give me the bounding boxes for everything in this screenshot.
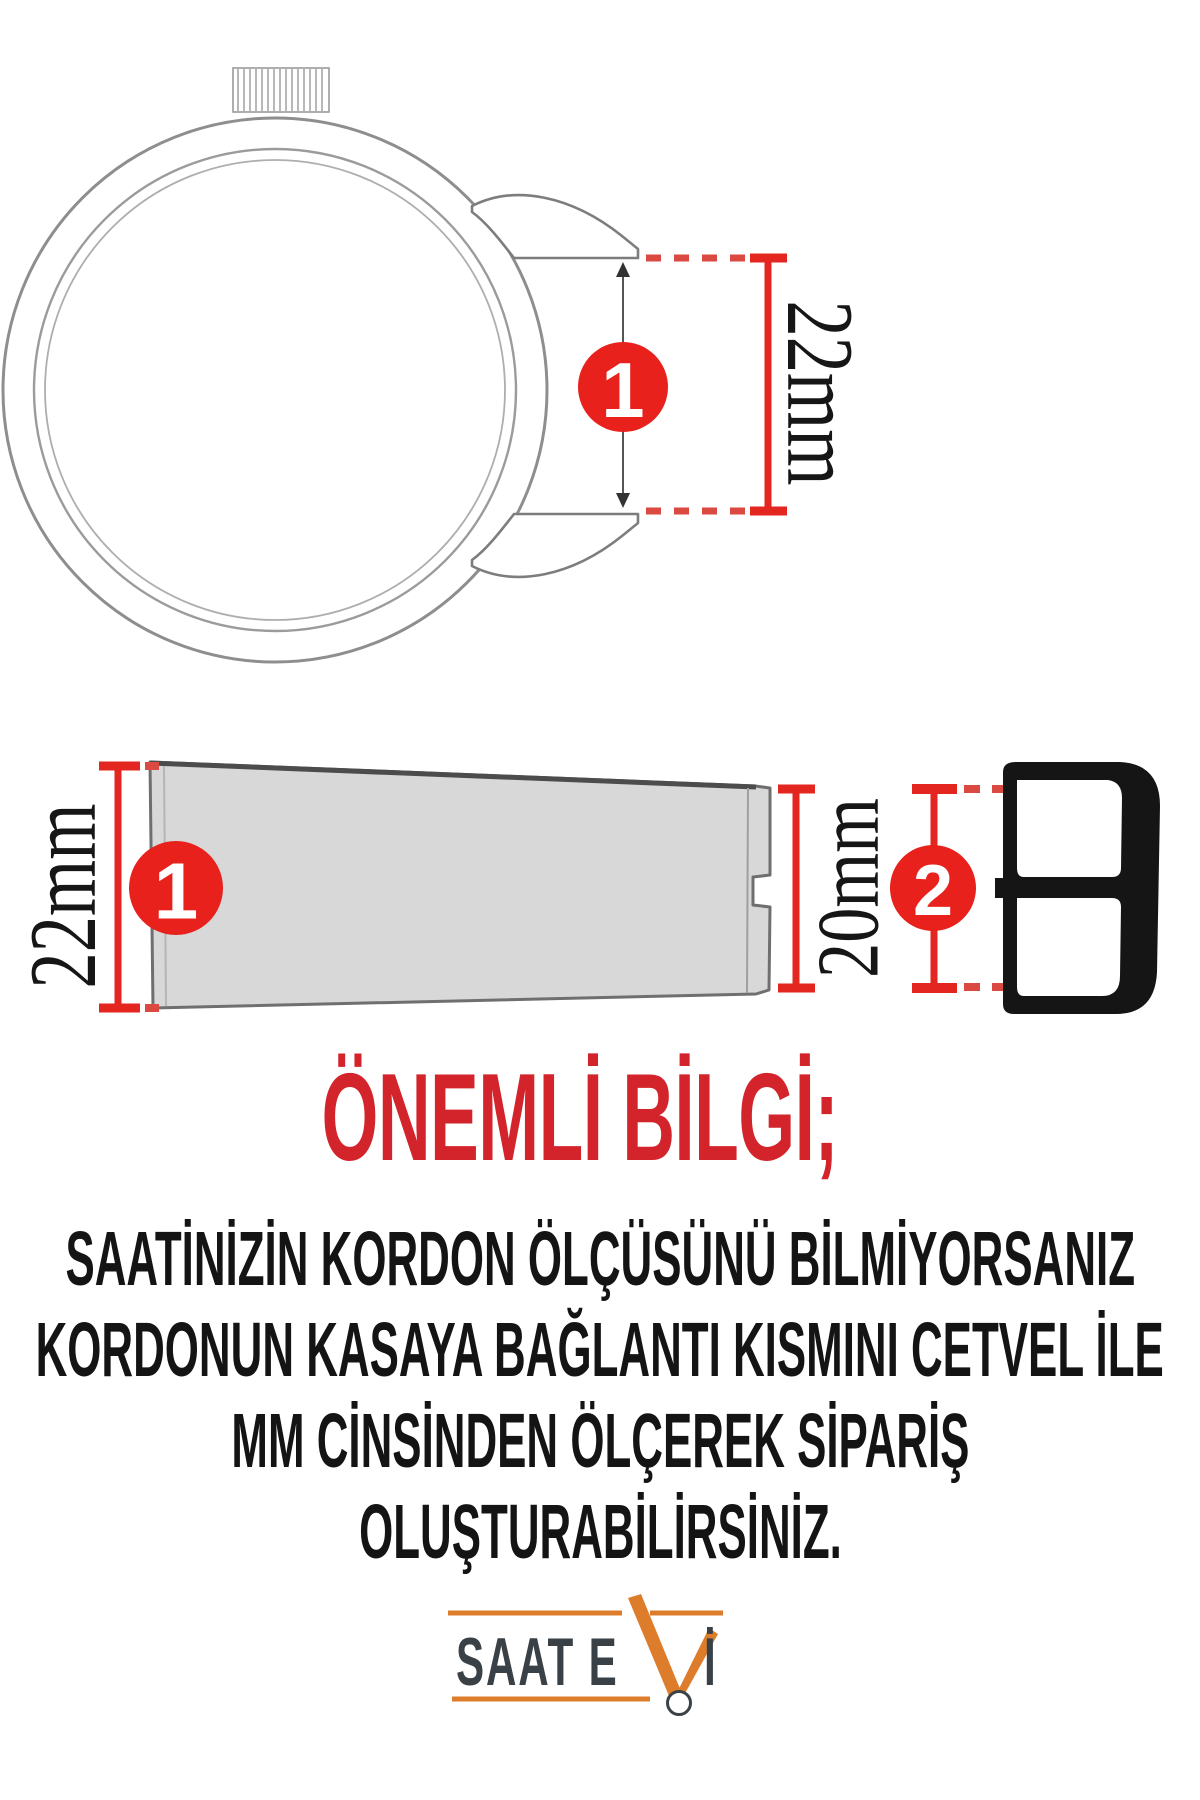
strap-narrow-end-measurement: 20mm xyxy=(778,789,898,988)
watch-crown-icon xyxy=(233,68,329,112)
buckle-measurement: 2 xyxy=(890,789,1008,988)
buckle-prong xyxy=(995,878,1007,898)
watch-case-outer-circle xyxy=(3,118,547,662)
strap-right-seam xyxy=(747,788,748,993)
arrow-down-icon xyxy=(616,493,630,508)
body-line-2: KORDONUN KASAYA BAĞLANTI KISMINI CETVEL … xyxy=(36,1305,1164,1396)
step-1-badge-number: 1 xyxy=(154,847,199,936)
watch-case-drawing xyxy=(3,68,638,662)
infographic: 1 22mm 1 22mm 20mm 2 xyxy=(0,0,1200,1800)
arrow-up-icon xyxy=(616,262,630,277)
important-info-heading-row: ÖNEMLİ BİLGİ; xyxy=(0,1048,1180,1188)
step-1-badge-number: 1 xyxy=(601,346,644,434)
body-line-row: MM CİNSİNDEN ÖLÇEREK SİPARİŞ xyxy=(0,1396,1200,1487)
strap-drawing xyxy=(150,762,770,1008)
logo-wordmark-i: İ xyxy=(704,1628,718,1696)
body-line-4: OLUŞTURABİLİRSİNİZ. xyxy=(359,1487,842,1578)
buckle-icon xyxy=(995,762,1160,1014)
step-2-badge-number: 2 xyxy=(913,851,953,931)
strap-narrow-end-label: 20mm xyxy=(801,798,898,978)
strap-wide-end-label: 22mm xyxy=(10,804,116,989)
body-line-1: SAATİNİZİN KORDON ÖLÇÜSÜNÜ BİLMİYORSANIZ xyxy=(65,1214,1135,1305)
lug-width-measurement: 1 22mm xyxy=(578,258,873,511)
body-line-3: MM CİNSİNDEN ÖLÇEREK SİPARİŞ xyxy=(231,1396,969,1487)
strap-body xyxy=(150,762,770,1008)
watch-hand-minute-icon xyxy=(628,1594,683,1703)
body-line-row: SAATİNİZİN KORDON ÖLÇÜSÜNÜ BİLMİYORSANIZ xyxy=(0,1214,1200,1305)
body-line-row: OLUŞTURABİLİRSİNİZ. xyxy=(0,1487,1200,1578)
body-line-row: KORDONUN KASAYA BAĞLANTI KISMINI CETVEL … xyxy=(0,1305,1200,1396)
logo-wordmark: SAAT E xyxy=(456,1628,619,1696)
watch-hand-pivot-icon xyxy=(668,1692,691,1715)
lug-width-label: 22mm xyxy=(767,301,873,486)
important-info-heading: ÖNEMLİ BİLGİ; xyxy=(322,1048,839,1188)
